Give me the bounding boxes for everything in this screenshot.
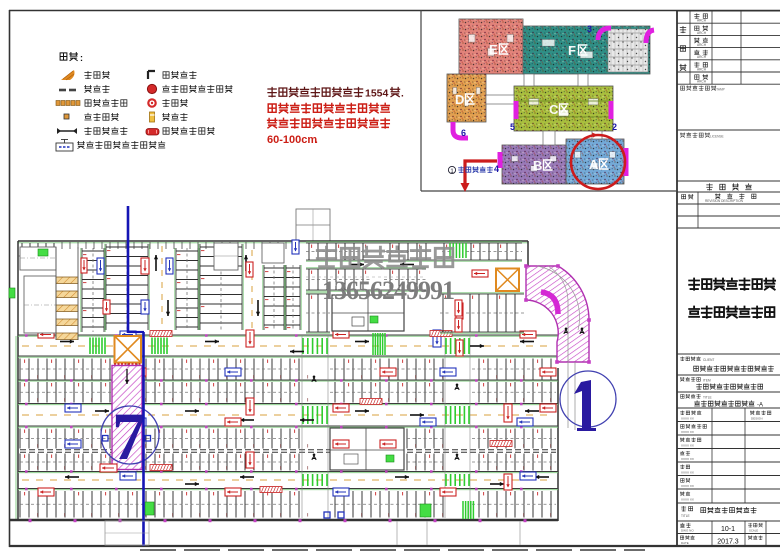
svg-text:ARCH: ARCH xyxy=(697,43,707,47)
svg-text:XXXX XX: XXXX XX xyxy=(681,444,694,448)
svg-text:E: E xyxy=(489,42,498,57)
svg-text:60-100cm: 60-100cm xyxy=(267,134,317,146)
svg-text:3: 3 xyxy=(587,24,592,34)
svg-text:F: F xyxy=(568,43,576,58)
svg-text:.: . xyxy=(315,135,318,146)
svg-text:STAMP: STAMP xyxy=(714,88,725,92)
svg-text:10-1: 10-1 xyxy=(721,526,735,533)
svg-text:XXXX XX: XXXX XX xyxy=(681,484,694,488)
svg-text:TITLE: TITLE xyxy=(681,514,690,518)
svg-text:ARCH: ARCH xyxy=(697,19,707,23)
svg-text:DATE: DATE xyxy=(681,541,689,545)
svg-text:2: 2 xyxy=(612,122,617,132)
svg-text:LICENSE: LICENSE xyxy=(710,135,724,139)
svg-text:1554: 1554 xyxy=(365,88,389,100)
svg-text:D: D xyxy=(455,92,464,107)
svg-text:XXXX XX: XXXX XX xyxy=(681,430,694,434)
svg-text:ARCH: ARCH xyxy=(697,67,707,71)
svg-text:ARCH: ARCH xyxy=(697,80,707,84)
svg-text:B: B xyxy=(533,158,542,173)
svg-text:ARCH: ARCH xyxy=(697,31,707,35)
svg-text:2017.3: 2017.3 xyxy=(717,539,739,546)
svg-text:ARCH: ARCH xyxy=(697,55,707,59)
svg-text:6: 6 xyxy=(461,128,466,138)
svg-text:4: 4 xyxy=(494,164,499,174)
svg-text:CLIENT: CLIENT xyxy=(703,358,714,362)
svg-text:.: . xyxy=(401,89,404,100)
svg-text:13656249991: 13656249991 xyxy=(322,276,454,305)
svg-text:DWG NO: DWG NO xyxy=(681,529,694,533)
svg-text:TITLE: TITLE xyxy=(703,396,712,400)
svg-text:ITEM: ITEM xyxy=(703,379,711,383)
svg-text:XXXX XX: XXXX XX xyxy=(681,471,694,475)
svg-text:XXXX XX: XXXX XX xyxy=(681,457,694,461)
svg-text:5: 5 xyxy=(510,122,515,132)
svg-text:SCALE: SCALE xyxy=(749,529,758,533)
svg-text:XXXX XX: XXXX XX xyxy=(681,417,694,421)
svg-text:REVISION DESCRIPTION: REVISION DESCRIPTION xyxy=(705,199,744,203)
svg-text:C: C xyxy=(549,102,559,117)
svg-text::: : xyxy=(80,53,83,63)
svg-text:7: 7 xyxy=(112,398,146,474)
svg-text:A: A xyxy=(589,157,599,172)
svg-text:1: 1 xyxy=(450,168,454,175)
svg-text:XXXX XX: XXXX XX xyxy=(681,498,694,502)
svg-text:DESIGN: DESIGN xyxy=(751,417,763,421)
